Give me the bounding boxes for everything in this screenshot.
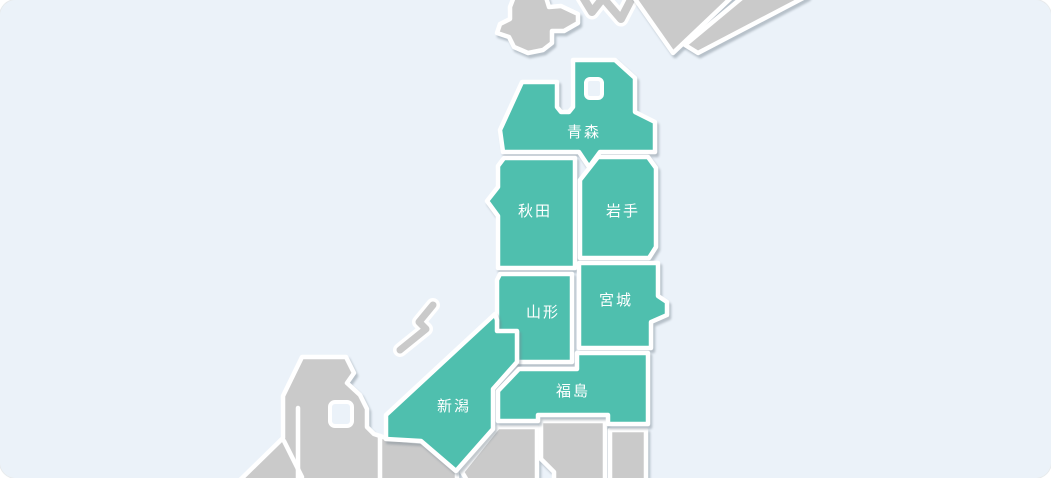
- mutsu-bay-notch: [586, 79, 602, 98]
- landmass-kanto-east: [610, 430, 646, 478]
- landmass-kanto-center: [541, 421, 605, 478]
- toyama-bay: [330, 402, 352, 426]
- tohoku-region-map: 青森 秋田 岩手 山形 宮城 新潟 福島: [0, 0, 1051, 478]
- prefecture-iwate[interactable]: [580, 157, 656, 258]
- prefecture-akita[interactable]: [487, 158, 575, 268]
